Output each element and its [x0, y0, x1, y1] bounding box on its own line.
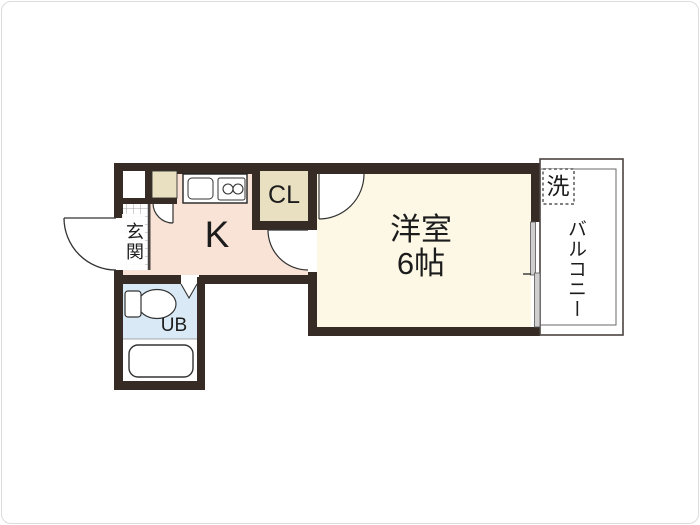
sliding-window-panel-lower	[535, 273, 541, 327]
western-room-label: 洋室 6帖	[350, 213, 492, 281]
wall-left-lower	[114, 270, 123, 390]
wall-closet-left	[252, 163, 260, 225]
closet-label: CL	[262, 181, 306, 209]
sliding-window-panel-upper	[531, 222, 536, 275]
kitchen-counter	[183, 174, 247, 203]
toilet-tank-icon	[125, 291, 141, 317]
wall-room-left-lower	[308, 272, 317, 336]
wall-left-upper	[114, 163, 123, 218]
unit-bath-label: UB	[152, 315, 196, 337]
wall-room-right-upper	[531, 163, 540, 222]
sink-icon	[188, 178, 213, 199]
western-room-label-line1: 洋室	[350, 213, 492, 247]
wall-closet-right	[308, 163, 317, 222]
wall-closet-bottom	[252, 221, 317, 230]
storage-box	[152, 171, 177, 198]
wall-ub-right	[197, 277, 205, 390]
wall-top	[114, 163, 541, 174]
balcony-label: バルコニー	[563, 208, 588, 330]
western-room-label-line2: 6帖	[350, 247, 492, 281]
floor-plan-image: K CL 洋室 6帖 玄関 UB 洗 バルコニー	[0, 0, 700, 525]
shoe-box	[123, 171, 145, 198]
wall-storage-divider	[145, 171, 152, 198]
bathtub-icon	[129, 345, 193, 377]
wall-k-bottom-left	[114, 275, 181, 284]
wall-storage-bottom	[123, 198, 177, 204]
stove-burner-right-icon	[233, 184, 243, 194]
wall-ub-bottom	[114, 381, 205, 390]
entrance-label: 玄関	[122, 214, 145, 270]
kitchen-label: K	[195, 212, 239, 258]
wall-k-bottom-right	[199, 275, 317, 284]
stove-burner-left-icon	[223, 184, 233, 194]
wall-room-bottom	[308, 327, 540, 336]
entrance-door-swing	[64, 218, 116, 270]
entrance-storage	[123, 171, 177, 204]
washer-label: 洗	[541, 172, 575, 200]
entrance-tile-edge	[148, 204, 151, 270]
